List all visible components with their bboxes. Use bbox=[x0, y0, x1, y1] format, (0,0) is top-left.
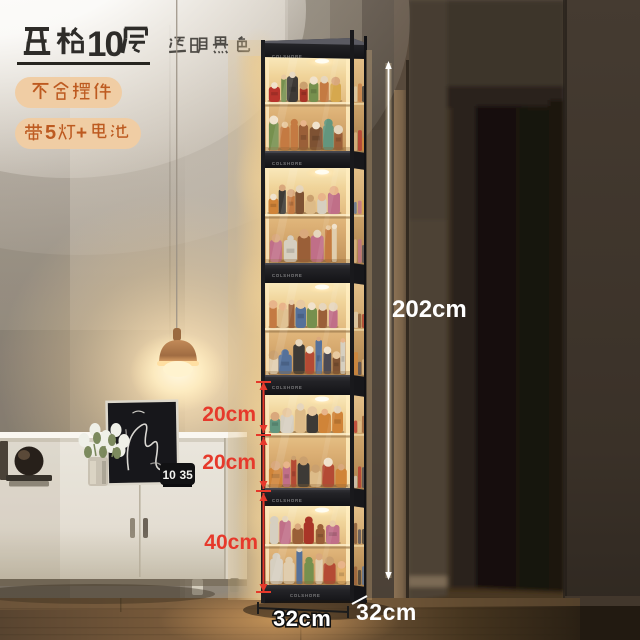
svg-text:32cm: 32cm bbox=[273, 606, 331, 631]
svg-text:5: 5 bbox=[45, 122, 56, 144]
svg-text:COLSHORE: COLSHORE bbox=[290, 593, 321, 598]
svg-text:COLSHORE: COLSHORE bbox=[272, 161, 303, 166]
svg-text:202cm: 202cm bbox=[392, 296, 467, 323]
svg-text:COLSHORE: COLSHORE bbox=[272, 54, 303, 59]
svg-text:COLSHORE: COLSHORE bbox=[272, 385, 303, 390]
svg-text:40cm: 40cm bbox=[204, 531, 258, 554]
svg-text:COLSHORE: COLSHORE bbox=[272, 273, 303, 278]
svg-text:20cm: 20cm bbox=[202, 451, 256, 474]
svg-text:10: 10 bbox=[163, 468, 177, 482]
svg-text:32cm: 32cm bbox=[356, 599, 417, 625]
svg-text:20cm: 20cm bbox=[202, 403, 256, 426]
svg-text:+: + bbox=[76, 123, 87, 144]
svg-text:COLSHORE: COLSHORE bbox=[272, 498, 303, 503]
svg-text:10: 10 bbox=[87, 25, 123, 64]
svg-text:35: 35 bbox=[180, 468, 194, 482]
